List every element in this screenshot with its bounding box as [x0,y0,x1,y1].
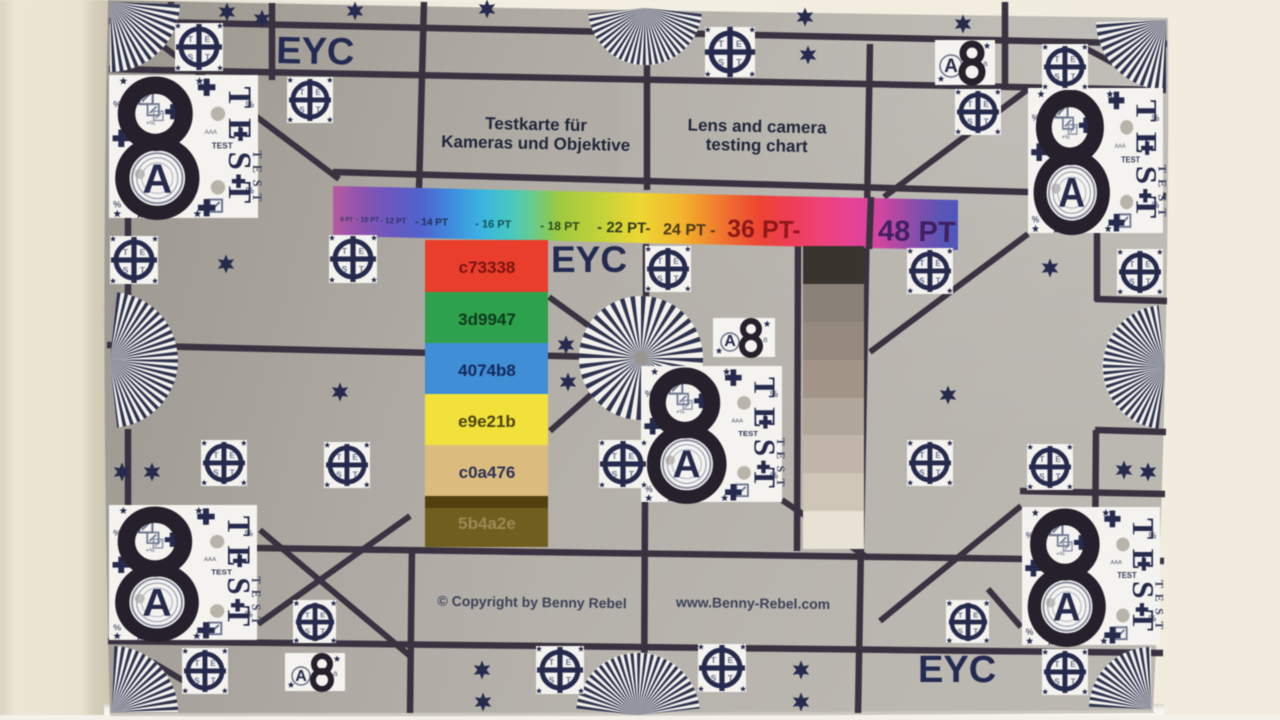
svg-text:%: % [1032,214,1040,225]
svg-text:8 PT: 8 PT [340,217,353,223]
svg-text:S: S [1054,72,1060,81]
svg-text:E: E [205,34,211,44]
svg-text:A: A [142,156,172,202]
svg-text:3d9947: 3d9947 [458,310,516,329]
svg-text:EYC: EYC [918,649,996,691]
svg-text:T: T [336,453,341,462]
svg-text:24 PT -: 24 PT - [663,221,716,239]
svg-text:4074b8: 4074b8 [458,361,516,380]
svg-text:T: T [936,276,941,285]
svg-text:E: E [320,611,325,620]
svg-text:EYC: EYC [551,239,627,280]
svg-text:E: E [140,247,146,257]
svg-text:TEST: TEST [1121,155,1140,164]
svg-text:T: T [1156,208,1169,216]
svg-text:T: T [1152,621,1165,629]
svg-text:a: a [983,59,988,68]
svg-text:AAA: AAA [731,418,743,424]
svg-text:T: T [728,673,734,683]
svg-text:- 18 PT: - 18 PT [540,219,580,234]
svg-text:E: E [1055,455,1061,464]
svg-text:E: E [1126,549,1160,570]
svg-text:T: T [123,247,129,257]
svg-text:S: S [919,468,925,477]
svg-text:T: T [1039,455,1044,464]
svg-text:AAA: AAA [1111,560,1123,566]
svg-text:E: E [221,118,257,140]
svg-text:A: A [724,333,736,350]
svg-text:S: S [958,627,963,636]
svg-text:T: T [1054,660,1059,669]
svg-text:S: S [1129,277,1135,286]
svg-text:T: T [221,516,257,537]
svg-text:T: T [919,259,924,268]
svg-text:S: S [967,117,973,126]
svg-text:T: T [736,58,742,68]
svg-text:S: S [305,627,310,636]
svg-text:TEST: TEST [738,429,758,438]
svg-text:E: E [1152,594,1165,602]
svg-text:S: S [336,470,342,479]
svg-text:%: % [113,200,121,210]
svg-text:T: T [1071,72,1076,81]
svg-text:S: S [249,604,263,611]
svg-text:S: S [549,675,555,685]
svg-text:E: E [1130,132,1163,154]
svg-text:E: E [1156,179,1169,187]
svg-text:T: T [984,117,989,126]
svg-text:S: S [1156,194,1169,201]
svg-text:+%: +% [1056,551,1064,557]
svg-text:A: A [142,582,171,625]
svg-text:TEST: TEST [211,568,232,577]
svg-text:T: T [549,657,555,667]
svg-text:- 22 PT-: - 22 PT- [597,219,651,237]
svg-text:S: S [342,264,348,274]
svg-text:T: T [299,88,304,97]
svg-text:S: S [123,265,129,275]
svg-text:T: T [188,34,194,44]
svg-text:T: T [612,451,618,461]
svg-text:E: E [629,451,635,461]
svg-text:E: E [315,88,321,97]
svg-text:T: T [205,52,211,62]
svg-text:T: T [249,576,263,584]
svg-text:S: S [657,274,663,283]
svg-text:E: E [935,451,941,460]
svg-text:T: T [359,264,365,274]
svg-text:S: S [1039,472,1045,481]
svg-text:T: T [342,246,348,256]
svg-text:S: S [1152,608,1165,615]
svg-text:5b4a2e: 5b4a2e [458,514,516,533]
svg-text:T: T [967,100,972,109]
svg-text:T: T [919,451,924,460]
svg-text:www.Benny-Rebel.com: www.Benny-Rebel.com [675,594,831,612]
svg-text:T: T [140,265,146,275]
svg-text:T: T [250,193,264,201]
svg-text:E: E [983,100,989,109]
svg-text:+%: +% [146,120,156,127]
svg-text:+%: +% [676,410,685,416]
svg-text:Testkarte für: Testkarte für [485,114,587,135]
svg-text:E: E [1070,55,1076,64]
svg-text:E: E [229,451,235,460]
svg-text:T: T [250,151,264,159]
svg-text:T: T [1130,100,1163,122]
svg-text:+%: +% [146,548,156,554]
svg-text:S: S [711,673,717,683]
svg-text:S: S [919,276,925,285]
svg-text:T: T [249,617,263,625]
svg-text:- 14 PT: - 14 PT [415,217,448,229]
svg-text:E: E [352,453,358,462]
svg-text:S: S [188,52,194,62]
svg-text:AAA: AAA [204,557,216,563]
svg-text:S: S [1054,677,1060,686]
svg-text:36 PT-: 36 PT- [727,215,801,245]
svg-text:A: A [673,444,701,487]
svg-text:T: T [747,377,782,398]
svg-text:T: T [1056,472,1061,481]
svg-text:T: T [194,659,199,668]
svg-text:T: T [305,611,310,620]
svg-text:E: E [973,611,978,620]
svg-text:%: % [113,623,121,633]
svg-text:T: T [211,676,216,685]
svg-text:A: A [944,56,958,77]
svg-text:T: T [221,87,257,109]
svg-text:E: E [728,655,734,665]
svg-text:T: T [1071,677,1076,686]
svg-text:E: E [250,165,264,173]
svg-text:- 10 PT: - 10 PT [356,217,380,225]
svg-text:S: S [612,469,618,479]
svg-text:E: E [566,657,572,667]
svg-text:E: E [673,257,679,266]
svg-text:E: E [1145,260,1151,269]
svg-text:© Copyright by Benny Rebel: © Copyright by Benny Rebel [437,593,626,612]
svg-text:S: S [718,58,724,68]
svg-text:T: T [230,468,235,477]
svg-text:c0a476: c0a476 [459,463,516,482]
svg-text:T: T [718,39,724,49]
svg-text:T: T [711,655,717,665]
svg-text:E: E [935,259,941,268]
svg-text:TEST: TEST [1117,571,1137,580]
svg-text:E: E [736,39,742,49]
svg-text:T: T [629,469,635,479]
svg-text:c73338: c73338 [459,258,516,277]
svg-text:AAA: AAA [205,129,218,136]
svg-text:A: A [1058,170,1085,216]
svg-text:AAA: AAA [1115,144,1126,150]
svg-text:S: S [213,468,219,477]
svg-text:T: T [213,451,218,460]
svg-text:T: T [566,675,572,685]
svg-text:A: A [295,668,307,685]
svg-text:E: E [210,659,216,668]
svg-text:a: a [333,669,338,678]
svg-text:T: T [1156,165,1169,173]
svg-text:48 PT: 48 PT [878,215,956,249]
svg-text:EYC: EYC [276,30,355,74]
svg-text:T: T [1129,260,1134,269]
svg-text:T: T [936,468,941,477]
svg-text:T: T [774,438,787,446]
svg-text:E: E [774,451,787,459]
svg-text:T: T [657,257,662,266]
svg-text:+%: +% [1062,135,1071,141]
svg-text:TEST: TEST [212,142,233,151]
svg-text:E: E [221,546,257,567]
svg-text:T: T [973,627,978,636]
svg-text:- 16 PT: - 16 PT [475,218,512,231]
svg-text:T: T [774,479,787,487]
svg-text:E: E [359,246,365,256]
svg-text:T: T [353,470,358,479]
svg-text:A: A [1053,586,1080,630]
svg-text:T: T [1054,55,1059,64]
svg-text:S: S [250,180,264,187]
svg-text:T: T [1146,277,1151,286]
svg-text:a: a [763,335,768,344]
svg-text:T: T [316,105,321,114]
svg-text:Kameras und Objektive: Kameras und Objektive [441,132,630,155]
svg-text:%: % [1026,627,1034,637]
svg-text:T: T [320,627,325,636]
svg-text:- 12 PT: - 12 PT [380,216,407,226]
svg-text:T: T [674,274,679,283]
svg-text:testing chart: testing chart [706,135,809,156]
svg-text:T: T [958,611,963,620]
svg-text:T: T [1126,518,1160,539]
svg-text:S: S [299,105,305,114]
svg-text:S: S [194,676,200,685]
svg-text:S: S [774,466,787,472]
svg-text:e9e21b: e9e21b [458,412,516,431]
svg-text:E: E [249,590,263,598]
svg-text:T: T [1152,580,1165,588]
svg-text:E: E [1070,660,1076,669]
svg-text:E: E [747,407,782,428]
